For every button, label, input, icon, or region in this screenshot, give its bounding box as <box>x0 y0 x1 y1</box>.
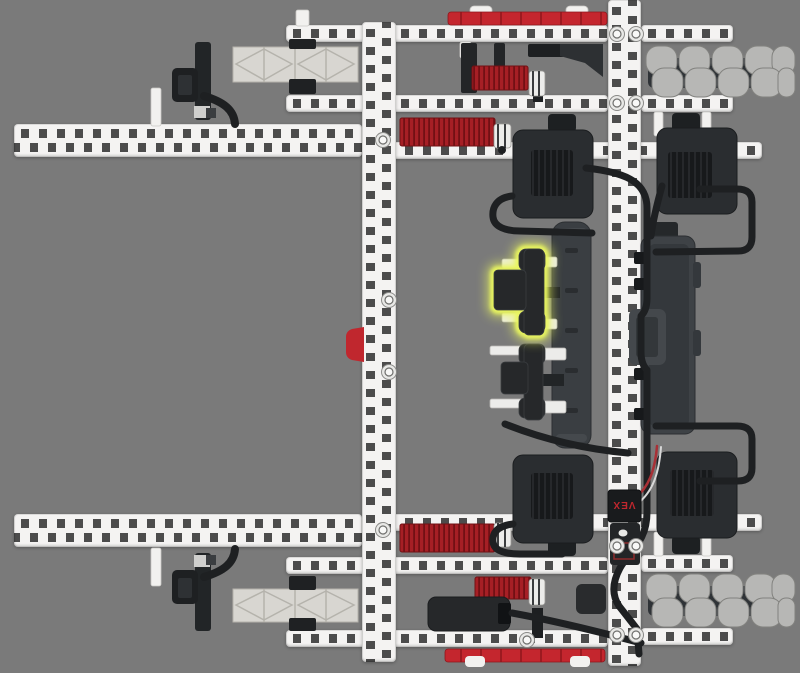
motor-bottom-right <box>657 452 737 554</box>
strip-tab <box>570 656 590 667</box>
gears <box>400 66 531 599</box>
motor-top-right <box>657 113 737 214</box>
bracket-hardware <box>206 555 216 565</box>
omni-wheel-top <box>646 46 795 97</box>
truss-connectors <box>289 39 316 631</box>
red-bumper-clip <box>346 327 364 362</box>
battery <box>552 222 591 448</box>
shaft-collar <box>529 579 545 638</box>
red-strip-top <box>448 12 607 25</box>
render-canvas: VEX <box>0 0 800 673</box>
gear-bottom-center <box>475 577 531 599</box>
red-strip-bottom <box>445 649 605 667</box>
claw-bracket-top <box>172 42 216 120</box>
claw-bracket-bottom <box>172 553 216 631</box>
shaft-collar <box>494 124 511 154</box>
strip-tab <box>465 656 485 667</box>
components-layer: VEX <box>0 0 800 673</box>
motor-bottom-left <box>513 455 593 556</box>
truss-plate-bottom <box>233 589 358 622</box>
bumper-switch-lower <box>490 344 566 420</box>
radio-logo-text: VEX <box>612 499 635 510</box>
side-module <box>629 309 666 365</box>
omni-wheel-bottom <box>646 574 795 627</box>
motor-top-left <box>513 114 593 218</box>
bumper-peg <box>540 374 564 386</box>
bracket-hardware <box>206 108 216 118</box>
gear-upper-left <box>400 118 495 146</box>
omni-rollers <box>646 46 795 97</box>
truss-plate-top <box>233 47 358 82</box>
omni-rollers <box>646 574 795 627</box>
gear-lower-left <box>400 524 495 552</box>
shaft-collar <box>529 71 545 96</box>
cable <box>586 168 647 234</box>
bumper-switch-highlighted[interactable] <box>494 249 560 335</box>
gear-top-center <box>472 66 528 90</box>
